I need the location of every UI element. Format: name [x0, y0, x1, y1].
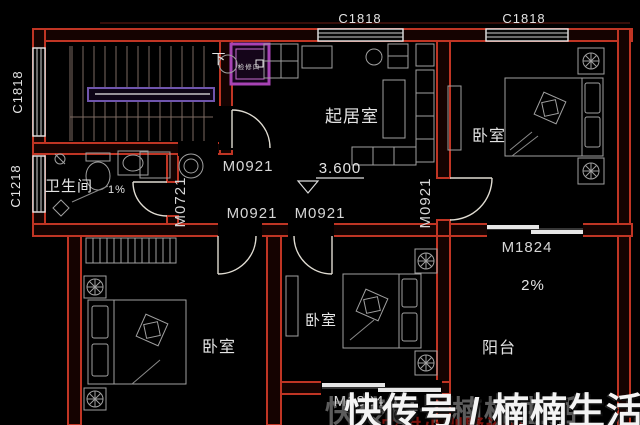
label-access-panel: 检修口	[238, 62, 261, 71]
label-bedroom-top-right: 卧室	[472, 127, 506, 145]
label-stair-down: 下	[212, 51, 227, 67]
label-balcony: 阳台	[482, 339, 516, 357]
window-c1818-top-2	[486, 29, 568, 41]
label-door-m1824-right: M1824	[502, 239, 553, 256]
floor-plan-drawing: C1818 C1818 C1818 C1218 下 检修口 起居室 卧室 卧室 …	[0, 0, 640, 425]
label-balcony-slope: 2%	[521, 277, 545, 294]
label-door-m0921-hall: M0921	[223, 158, 274, 175]
label-door-m0921-bedroom: M0921	[417, 178, 434, 229]
label-door-m0921-left: M0921	[227, 205, 278, 222]
label-bedroom-bottom-left: 卧室	[202, 338, 236, 356]
window-c1818-top-1	[318, 29, 403, 41]
label-bathroom-slope: 1%	[108, 184, 126, 196]
label-window-c1818-left: C1818	[10, 70, 25, 113]
label-bathroom: 卫生间	[45, 178, 93, 195]
label-door-m1824-bottom: M1824	[334, 393, 385, 410]
window-c1218-left	[33, 156, 45, 212]
label-door-m0921-right: M0921	[295, 205, 346, 222]
window-c1818-left	[33, 48, 45, 136]
label-door-m0721: M0721	[172, 177, 189, 228]
label-window-c1818-top-2: C1818	[502, 11, 545, 26]
cad-floorplan-screenshot: C1818 C1818 C1818 C1218 下 检修口 起居室 卧室 卧室 …	[0, 0, 640, 425]
label-window-c1818-top-1: C1818	[338, 11, 381, 26]
label-bedroom-bottom-middle: 卧室	[305, 312, 337, 329]
label-elevation: 3.600	[319, 160, 362, 177]
label-living-room: 起居室	[325, 107, 379, 126]
label-window-c1218-left: C1218	[8, 164, 23, 207]
